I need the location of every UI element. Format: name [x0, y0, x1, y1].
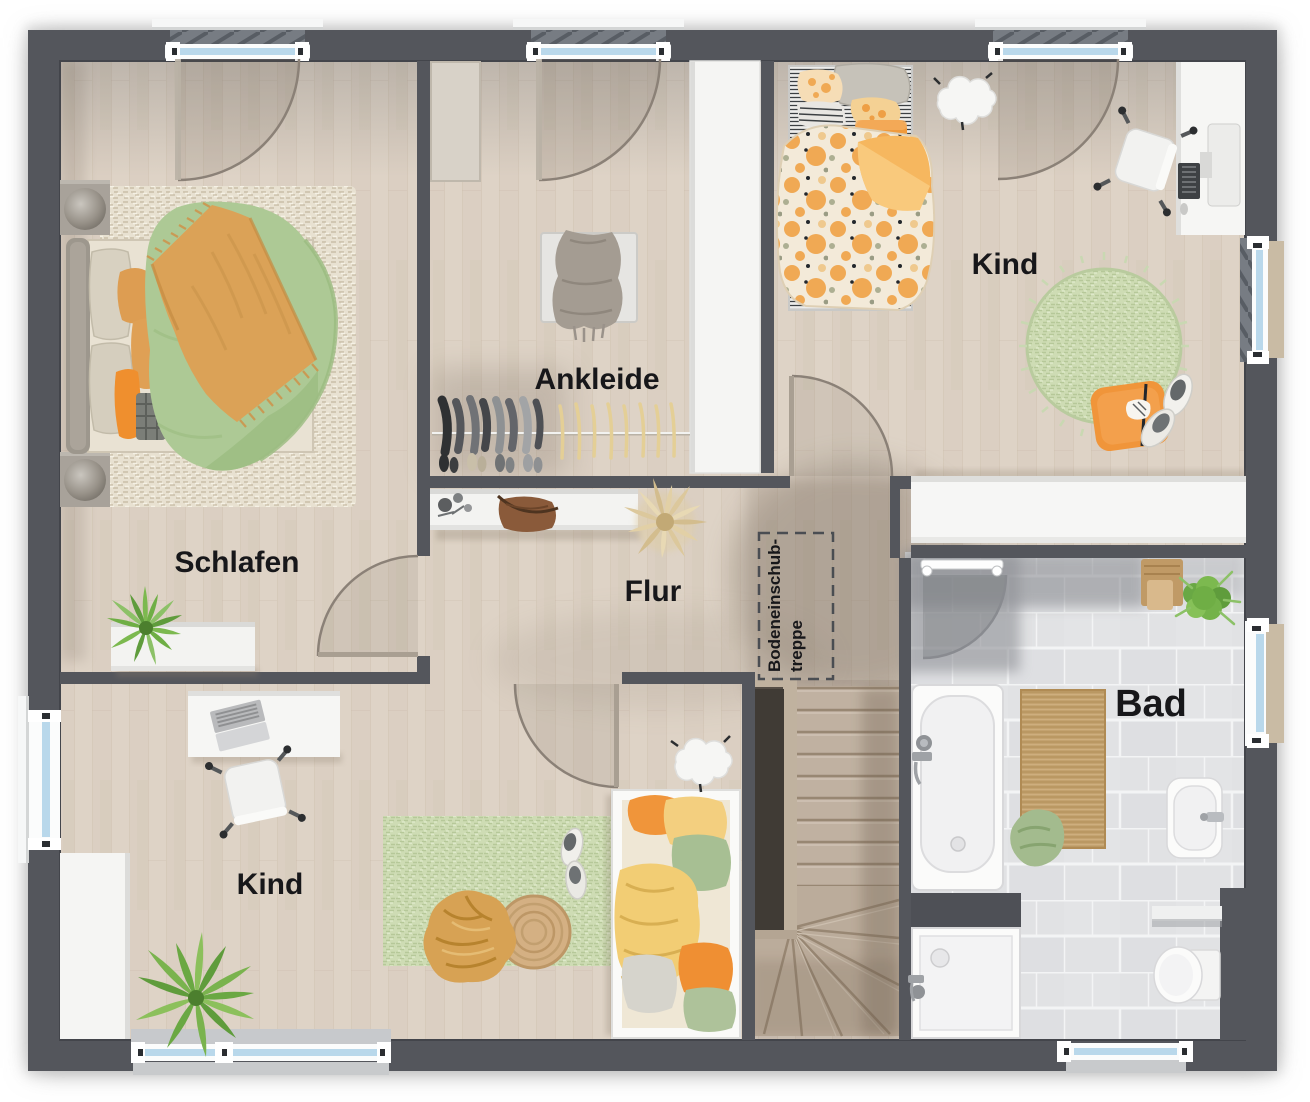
svg-text:Ankleide: Ankleide [534, 363, 659, 396]
svg-text:Flur: Flur [625, 575, 682, 608]
svg-text:Schlafen: Schlafen [174, 546, 299, 579]
svg-text:treppe: treppe [787, 620, 806, 672]
svg-text:Bodeneinschub-: Bodeneinschub- [765, 539, 784, 672]
svg-text:Kind: Kind [237, 868, 304, 901]
svg-text:Bad: Bad [1115, 683, 1187, 725]
svg-text:Kind: Kind [972, 248, 1039, 281]
